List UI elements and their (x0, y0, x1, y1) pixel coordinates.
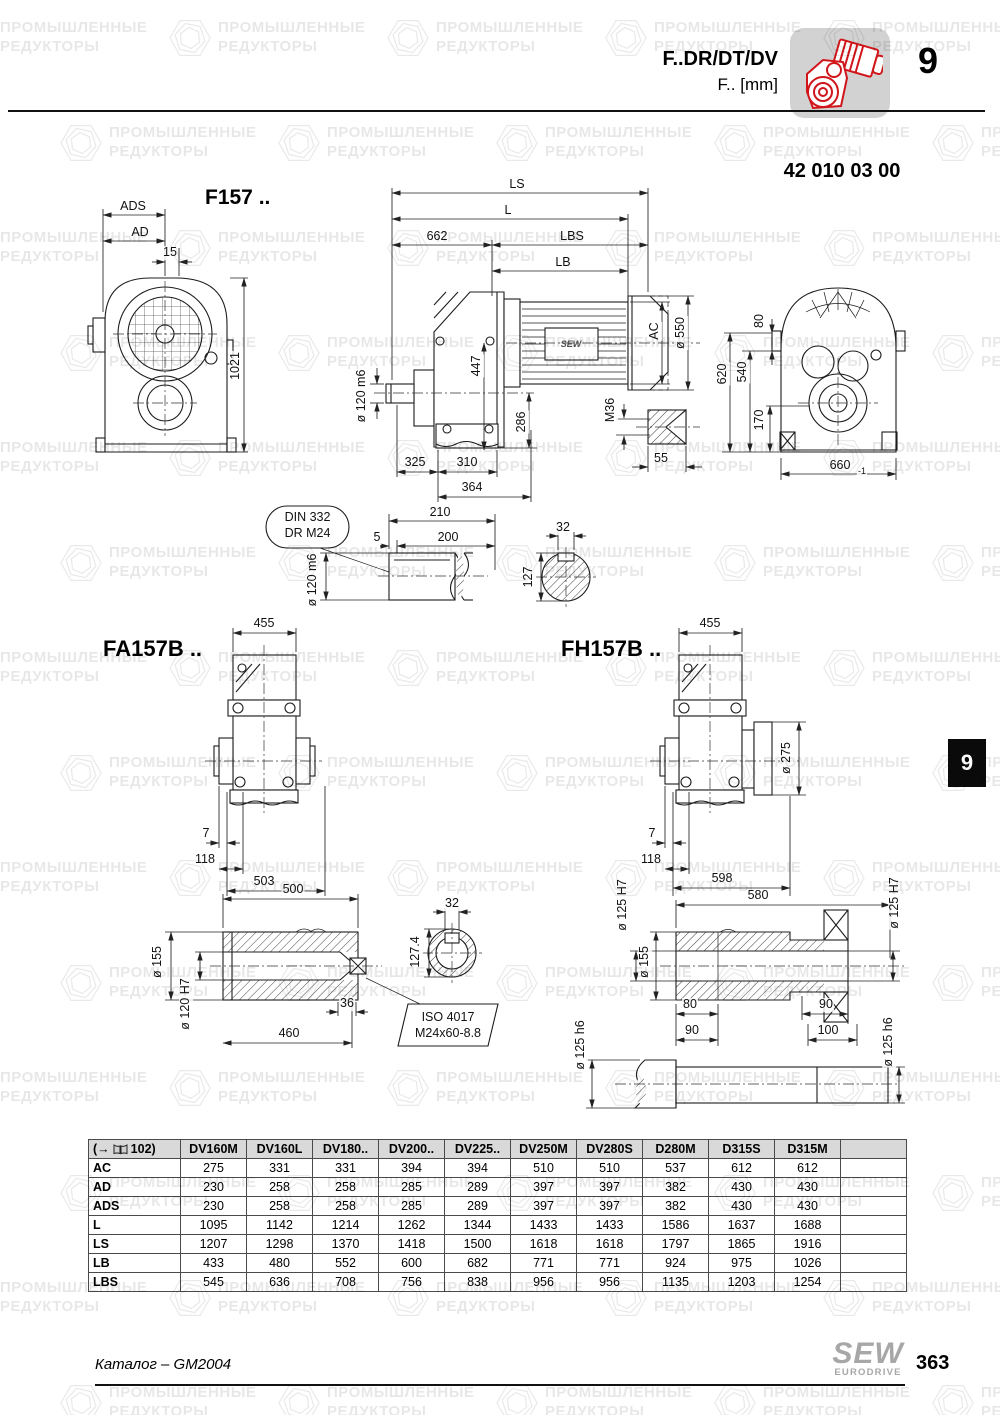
table-cell: 975 (709, 1254, 775, 1273)
table-cell: 756 (379, 1273, 445, 1292)
book-icon (113, 1144, 128, 1155)
table-cell: 1207 (181, 1235, 247, 1254)
table-cell: 258 (313, 1197, 379, 1216)
table-cell: 1026 (775, 1254, 841, 1273)
table-cell: 331 (313, 1159, 379, 1178)
table-cell: 394 (379, 1159, 445, 1178)
table-cell: 1916 (775, 1235, 841, 1254)
table-cell (841, 1216, 907, 1235)
fh157b-shaft-detail-drawing (586, 900, 905, 1108)
table-cell: 382 (643, 1197, 709, 1216)
table-column-header: DV250M (511, 1140, 577, 1159)
table-cell: 1135 (643, 1273, 709, 1292)
brand-subname: EURODRIVE (824, 1367, 912, 1378)
table-cell (841, 1254, 907, 1273)
part-number: 42 010 03 00 (762, 160, 922, 183)
f157-front-view-drawing (88, 209, 248, 452)
table-cell (841, 1235, 907, 1254)
table-cell: 230 (181, 1178, 247, 1197)
table-column-header: DV160L (247, 1140, 313, 1159)
drawing-title-f157: F157 .. (205, 186, 270, 210)
iso-balloon-text: ISO 4017 M24x60-8.8 (400, 1010, 496, 1041)
table-cell: 289 (445, 1178, 511, 1197)
table-column-header: DV225.. (445, 1140, 511, 1159)
table-cell: 612 (709, 1159, 775, 1178)
table-row: LB4334805526006827717719249751026 (89, 1254, 907, 1273)
table-cell (841, 1273, 907, 1292)
table-column-header: DV160M (181, 1140, 247, 1159)
din-balloon-line2: DR M24 (266, 526, 349, 542)
table-cell: 1203 (709, 1273, 775, 1292)
table-cell: 258 (313, 1178, 379, 1197)
table-row: AC275331331394394510510537612612 (89, 1159, 907, 1178)
row-label: ADS (89, 1197, 181, 1216)
dimension-table: (→ 102) DV160MDV160LDV180..DV200..DV225.… (88, 1139, 907, 1292)
table-cell: 1262 (379, 1216, 445, 1235)
chapter-side-tab: 9 (948, 739, 986, 787)
table-cell: 1500 (445, 1235, 511, 1254)
table-cell: 1254 (775, 1273, 841, 1292)
table-cell (841, 1159, 907, 1178)
table-cell: 1344 (445, 1216, 511, 1235)
table-cell: 480 (247, 1254, 313, 1273)
table-cell: 510 (577, 1159, 643, 1178)
table-cell: 1688 (775, 1216, 841, 1235)
table-column-header (841, 1140, 907, 1159)
table-cell: 285 (379, 1197, 445, 1216)
table-cell: 537 (643, 1159, 709, 1178)
table-cell: 1298 (247, 1235, 313, 1254)
table-cell: 1142 (247, 1216, 313, 1235)
din-balloon-text: DIN 332 DR M24 (266, 510, 349, 541)
motor-brand-label: SEW (561, 339, 582, 349)
table-cell: 682 (445, 1254, 511, 1273)
page-number: 363 (916, 1352, 949, 1375)
row-label: LBS (89, 1273, 181, 1292)
table-cell: 956 (511, 1273, 577, 1292)
table-cell: 397 (511, 1178, 577, 1197)
iso-balloon-line1: ISO 4017 (400, 1010, 496, 1026)
table-row: AD230258258285289397397382430430 (89, 1178, 907, 1197)
gearmotor-icon (797, 34, 883, 112)
table-cell: 1586 (643, 1216, 709, 1235)
chapter-number: 9 (918, 40, 938, 82)
table-cell: 394 (445, 1159, 511, 1178)
table-cell (841, 1178, 907, 1197)
table-cell: 1433 (511, 1216, 577, 1235)
table-row: ADS230258258285289397397382430430 (89, 1197, 907, 1216)
table-cell: 1618 (511, 1235, 577, 1254)
table-cell: 285 (379, 1178, 445, 1197)
fh157b-drawing (650, 628, 806, 896)
table-cell: 331 (247, 1159, 313, 1178)
table-cell: 545 (181, 1273, 247, 1292)
table-cell: 1095 (181, 1216, 247, 1235)
row-label: L (89, 1216, 181, 1235)
page-subtitle: F.. [mm] (540, 75, 778, 95)
table-row: LBS545636708756838956956113512031254 (89, 1273, 907, 1292)
table-column-header: DV200.. (379, 1140, 445, 1159)
header-rule (8, 110, 985, 112)
catalog-page: F..DR/DT/DV F.. [mm] 9 42 010 03 00 9 F1… (0, 0, 1000, 1415)
page-title: F..DR/DT/DV (540, 48, 778, 71)
table-cell: 636 (247, 1273, 313, 1292)
table-column-header: D315M (775, 1140, 841, 1159)
table-cell: 1865 (709, 1235, 775, 1254)
table-cell: 430 (709, 1178, 775, 1197)
row-label: LB (89, 1254, 181, 1273)
table-cell: 771 (577, 1254, 643, 1273)
table-column-header: D315S (709, 1140, 775, 1159)
table-cell: 924 (643, 1254, 709, 1273)
table-row: L109511421214126213441433143315861637168… (89, 1216, 907, 1235)
drawing-title-fa157b: FA157B .. (103, 636, 202, 662)
table-cell: 382 (643, 1178, 709, 1197)
gearmotor-icon-box (790, 28, 890, 118)
footer-rule (95, 1384, 905, 1386)
row-label: AC (89, 1159, 181, 1178)
table-cell: 289 (445, 1197, 511, 1216)
sew-eurodrive-logo: SEW EURODRIVE (824, 1340, 912, 1378)
table-cell: 708 (313, 1273, 379, 1292)
table-cell (841, 1197, 907, 1216)
ref-prefix: (→ (93, 1143, 110, 1156)
table-cell: 258 (247, 1178, 313, 1197)
ref-page: 102) (131, 1143, 156, 1156)
page-header: F..DR/DT/DV F.. [mm] (540, 48, 778, 95)
table-cell: 1370 (313, 1235, 379, 1254)
table-header-row: (→ 102) DV160MDV160LDV180..DV200..DV225.… (89, 1140, 907, 1159)
table-cell: 600 (379, 1254, 445, 1273)
table-column-header: D280M (643, 1140, 709, 1159)
brand-name: SEW (824, 1340, 912, 1367)
table-cell: 230 (181, 1197, 247, 1216)
iso-balloon-line2: M24x60-8.8 (400, 1026, 496, 1042)
row-label: AD (89, 1178, 181, 1197)
footer-catalog-label: Каталог – GM2004 (95, 1356, 231, 1373)
table-cell: 430 (775, 1178, 841, 1197)
table-cell: 1433 (577, 1216, 643, 1235)
row-label: LS (89, 1235, 181, 1254)
drawing-title-fh157b: FH157B .. (561, 636, 661, 662)
table-cell: 838 (445, 1273, 511, 1292)
table-cell: 1618 (577, 1235, 643, 1254)
table-column-header: DV180.. (313, 1140, 379, 1159)
table-cell: 397 (511, 1197, 577, 1216)
f157-side-view-drawing (370, 188, 702, 502)
table-ref-cell: (→ 102) (89, 1140, 181, 1159)
table-cell: 430 (775, 1197, 841, 1216)
table-cell: 1637 (709, 1216, 775, 1235)
table-row: LS12071298137014181500161816181797186519… (89, 1235, 907, 1254)
table-cell: 1418 (379, 1235, 445, 1254)
table-cell: 258 (247, 1197, 313, 1216)
table-cell: 1797 (643, 1235, 709, 1254)
table-cell: 612 (775, 1159, 841, 1178)
table-cell: 956 (577, 1273, 643, 1292)
f157-rear-view-drawing (722, 288, 905, 480)
table-cell: 430 (709, 1197, 775, 1216)
table-cell: 552 (313, 1254, 379, 1273)
table-cell: 1214 (313, 1216, 379, 1235)
table-cell: 771 (511, 1254, 577, 1273)
din-balloon-line1: DIN 332 (266, 510, 349, 526)
table-cell: 397 (577, 1197, 643, 1216)
table-cell: 510 (511, 1159, 577, 1178)
table-column-header: DV280S (577, 1140, 643, 1159)
table-cell: 397 (577, 1178, 643, 1197)
fa157b-drawing (205, 628, 325, 896)
table-cell: 433 (181, 1254, 247, 1273)
table-cell: 275 (181, 1159, 247, 1178)
